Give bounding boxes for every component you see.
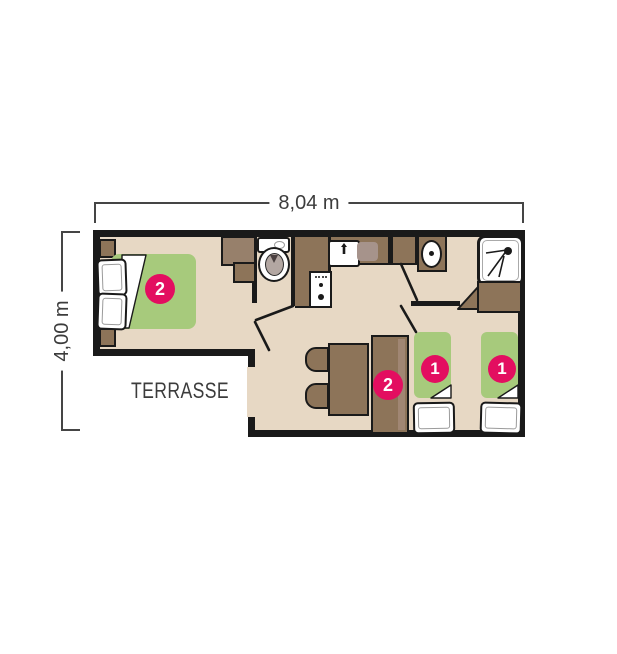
- terrace-label: TERRASSE: [131, 378, 219, 404]
- door-swing-lines: [0, 0, 617, 654]
- floorplan: 8,04 m 4,00 m 2: [0, 0, 617, 654]
